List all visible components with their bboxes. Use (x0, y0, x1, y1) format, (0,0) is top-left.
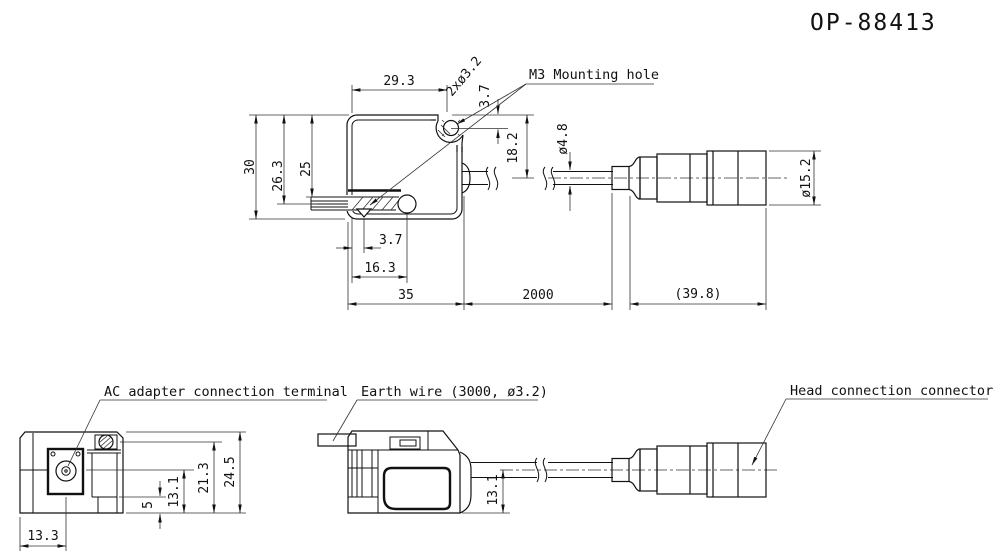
dim-cable-dia: ø4.8 (556, 123, 571, 154)
dim-body-width: 35 (398, 288, 414, 303)
dim-step-height: 5 (141, 501, 156, 509)
slot-marker (357, 209, 371, 217)
earth-wire-tab (318, 434, 356, 446)
top-view-dimensions: 29.3 2xø3.2 3.7 M3 Mounting hole 30 26.3… (243, 54, 821, 310)
dim-screw-center: 16.3 (364, 261, 395, 276)
dim-cable-length: 2000 (522, 288, 553, 303)
dim-side-body-height: 24.5 (223, 456, 238, 487)
dim-width-top: 29.3 (383, 74, 414, 89)
dim-screw-height: 21.3 (197, 462, 212, 493)
dim-body-height: 30 (243, 159, 258, 175)
dim-jack-height: 13.1 (167, 476, 182, 507)
dim-jack-x: 13.3 (27, 529, 58, 544)
dim-cable-height-side: 13.1 (486, 474, 501, 505)
dim-connector-length: (39.8) (675, 287, 722, 302)
side-view-left-body (20, 432, 123, 513)
label-earth-wire: Earth wire (3000, ø3.2) (361, 384, 548, 400)
dim-connector-dia: ø15.2 (799, 158, 814, 197)
top-view-cable (462, 167, 788, 190)
dim-rod-top: 25 (299, 161, 314, 177)
technical-drawing: OP-88413 29.3 2xø3.2 (0, 0, 1000, 560)
label-ac-adapter: AC adapter connection terminal (104, 384, 348, 400)
earth-screw-head (398, 195, 416, 213)
label-head-connector: Head connection connector (790, 383, 993, 399)
display-window (384, 468, 450, 509)
label-mounting-hole: M3 Mounting hole (529, 67, 659, 83)
drawing-title: OP-88413 (810, 10, 937, 36)
dim-rod-center: 26.3 (271, 160, 286, 191)
dim-cable-center: 18.2 (506, 132, 521, 163)
dim-slot-offset: 3.7 (379, 233, 402, 248)
top-view-body (311, 108, 470, 219)
side-view-left-dimensions: 5 13.1 21.3 24.5 13.3 AC adapter connect… (20, 384, 348, 551)
